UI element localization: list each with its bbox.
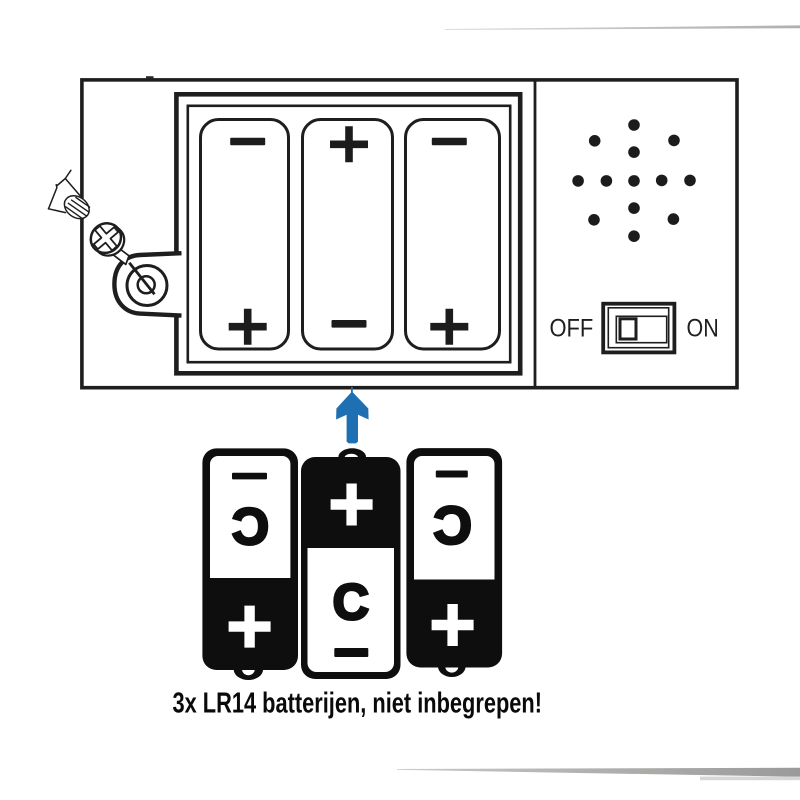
svg-text:C: C (433, 497, 471, 556)
svg-text:C: C (333, 574, 369, 630)
svg-text:C: C (232, 498, 269, 555)
svg-text:ON: ON (687, 314, 719, 342)
svg-text:3x LR14 batterijen, niet inbeg: 3x LR14 batterijen, niet inbegrepen! (173, 688, 543, 720)
svg-text:OFF: OFF (550, 314, 594, 342)
